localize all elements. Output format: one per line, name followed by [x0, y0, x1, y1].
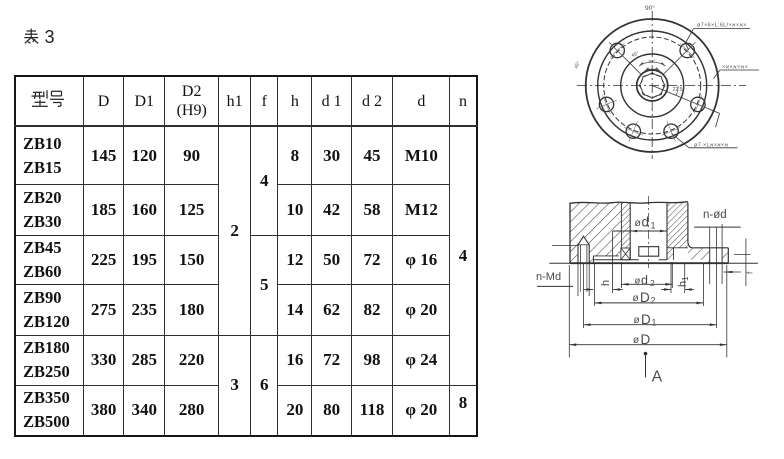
- svg-text:d: d: [641, 274, 648, 288]
- svg-text:n-ød: n-ød: [703, 209, 727, 221]
- svg-text:3: 3: [45, 27, 55, 47]
- svg-text:h1: h1: [677, 276, 690, 287]
- svg-text:ø: ø: [635, 217, 642, 229]
- svg-text:h: h: [600, 280, 612, 286]
- svg-text:ø7 ×Lא×א×א: ø7 ×Lא×א×א: [694, 143, 729, 149]
- svg-text:90°: 90°: [645, 4, 655, 12]
- svg-text:2: 2: [650, 278, 655, 288]
- svg-text:2: 2: [651, 296, 656, 306]
- svg-text:×א×א×א×: ×א×א×א×: [722, 65, 748, 71]
- svg-text:1: 1: [651, 221, 656, 231]
- svg-text:D: D: [641, 332, 651, 347]
- svg-text:ø: ø: [633, 335, 639, 346]
- svg-text:45°: 45°: [573, 60, 582, 69]
- svg-text:ø: ø: [634, 315, 640, 326]
- svg-text:ø: ø: [635, 276, 641, 287]
- svg-text:1: 1: [652, 318, 657, 328]
- svg-text:45°: 45°: [631, 51, 640, 59]
- svg-text:D: D: [641, 312, 651, 327]
- svg-text:90°: 90°: [649, 59, 656, 64]
- svg-text:n-Md: n-Md: [536, 271, 561, 283]
- svg-text:ø7×6×L:6L/×א×א×: ø7×6×L:6L/×א×א×: [697, 23, 747, 29]
- svg-text:d: d: [642, 215, 650, 230]
- svg-text:ø: ø: [633, 293, 639, 304]
- svg-text:22.5°: 22.5°: [673, 87, 685, 93]
- svg-text:f: f: [746, 271, 755, 274]
- svg-text:A: A: [652, 369, 663, 386]
- svg-text:D: D: [640, 290, 650, 305]
